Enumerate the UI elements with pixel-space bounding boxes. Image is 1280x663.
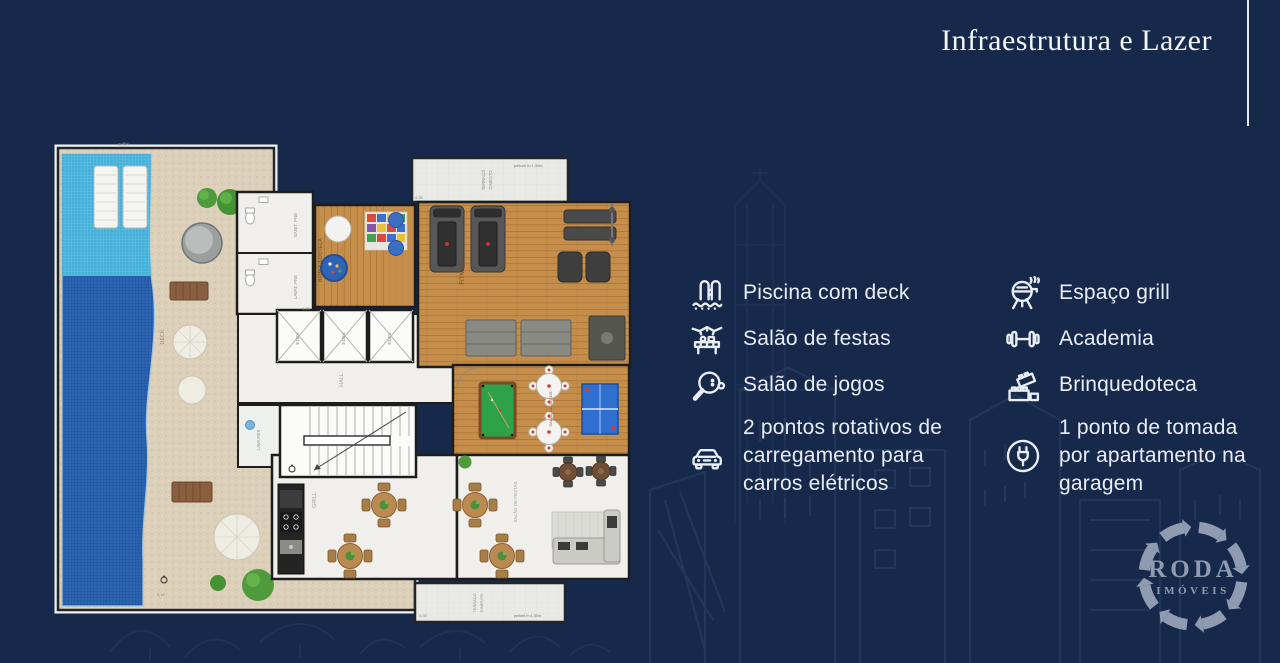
terrace-top: TERRAÇO CIMENTO peitoril h=1,30m 4,35: [412, 158, 568, 202]
dim-123: 1,23: [302, 306, 311, 311]
sanit-label: SANIT. PNE: [293, 213, 298, 238]
amenity-grill: Espaço grill: [1002, 270, 1272, 316]
amenity-list-left: Piscina com deck Salão de festas: [686, 270, 951, 498]
amenity-label: 2 pontos rotativos de carregamento para …: [743, 414, 951, 497]
logo-name: RODA: [1148, 556, 1238, 584]
logo-subtitle: IMÓVEIS: [1156, 585, 1229, 597]
peitoril-label: peitoril h=1,30m: [514, 163, 543, 168]
sofa: [552, 510, 620, 564]
svg-text:peitoril h=1,30m: peitoril h=1,30m: [514, 614, 541, 618]
svg-text:CIMENTO: CIMENTO: [479, 594, 484, 612]
amenity-label: Piscina com deck: [743, 279, 910, 307]
amenity-pool: Piscina com deck: [686, 270, 951, 316]
svg-text:CIMENTO: CIMENTO: [488, 170, 493, 190]
gutter-label: calha: [118, 142, 129, 147]
fitness-label: FITNESS: [460, 259, 466, 284]
amenity-garage-outlet: 1 ponto de tomada por apartamento na gar…: [1002, 414, 1272, 498]
amenity-label: Academia: [1059, 325, 1154, 353]
amenity-list-right: Espaço grill Academia: [1002, 270, 1272, 498]
ball-pit: [321, 255, 347, 281]
swimming-pool: [62, 154, 157, 606]
logo-text: RODA IMÓVEIS: [1127, 510, 1259, 642]
amenity-label: Brinquedoteca: [1059, 371, 1197, 399]
terrace-bottom: TERRAÇO CIMENTO peitoril h=1,30m 4,35: [415, 583, 565, 622]
amenity-label: Espaço grill: [1059, 279, 1170, 307]
title-divider-line: [1247, 0, 1249, 126]
amenity-gym: Academia: [1002, 316, 1272, 362]
grill-icon: [1002, 274, 1044, 312]
svg-text:ELEV.: ELEV.: [295, 331, 301, 344]
svg-text:ELEV.: ELEV.: [387, 331, 393, 344]
amenity-ev-charging: 2 pontos rotativos de carregamento para …: [686, 414, 951, 498]
party-room: SALÃO DE FESTAS: [453, 455, 629, 579]
amenity-playroom: Brinquedoteca: [1002, 362, 1272, 408]
deck-label: DECK: [160, 329, 166, 345]
svg-text:TERRAÇO: TERRAÇO: [481, 169, 486, 190]
kitchen-counter: [278, 484, 304, 574]
amenity-game-room: Salão de jogos: [686, 362, 951, 408]
svg-text:TERRAÇO: TERRAÇO: [472, 593, 477, 613]
page-background: Infraestrutura e Lazer: [0, 0, 1280, 663]
electric-car-icon: [686, 437, 728, 475]
billiard-table: [480, 383, 515, 438]
game-room: SALÃO DE JOGOS: [453, 365, 629, 455]
grill-label: GRILL: [312, 492, 318, 508]
jogos-label: SALÃO DE JOGOS: [548, 391, 553, 426]
page-title: Infraestrutura e Lazer: [941, 24, 1212, 58]
lavatorio-label: LAVAT. PNE: [293, 275, 298, 300]
party-room-icon: [686, 320, 728, 358]
dumbbell-icon: [1002, 320, 1044, 358]
brinquedoteca-label: BRINQUEDOTECA: [318, 238, 324, 282]
amenity-party-room: Salão de festas: [686, 316, 951, 362]
pingpong-table: [582, 384, 618, 434]
amenity-label: Salão de festas: [743, 325, 891, 353]
brinquedoteca-room: BRINQUEDOTECA: [315, 205, 415, 307]
lava-pes-label: LAVA PÉS: [255, 430, 261, 451]
amenity-label: Salão de jogos: [743, 371, 885, 399]
amenity-label: 1 ponto de tomada por apartamento na gar…: [1059, 414, 1272, 497]
dim-435: 4,35: [415, 195, 424, 200]
pool-deck-icon: [686, 274, 728, 312]
power-outlet-icon: [1002, 437, 1044, 475]
brand-logo: RODA IMÓVEIS: [1127, 510, 1259, 642]
hall-label: HALL: [339, 373, 345, 387]
svg-text:4,35: 4,35: [419, 613, 428, 618]
toy-blocks-icon: [1002, 366, 1044, 404]
festas-label: SALÃO DE FESTAS: [512, 482, 518, 523]
elevators: ELEV. ELEV. ELEV.: [277, 310, 413, 362]
bathrooms-pne: SANIT. PNE LAVAT. PNE: [237, 192, 313, 314]
dim-510: 5,10: [157, 592, 166, 597]
floorplan-image: calha: [52, 140, 644, 640]
svg-text:ELEV.: ELEV.: [341, 331, 347, 344]
game-room-icon: [686, 366, 728, 404]
fitness-room: FITNESS: [418, 202, 630, 367]
